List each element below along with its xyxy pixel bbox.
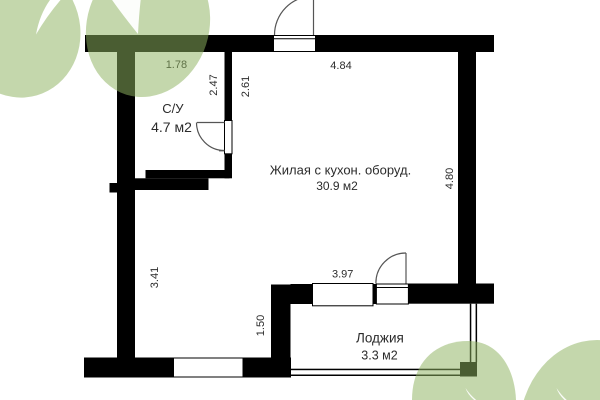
svg-text:4.80: 4.80	[444, 168, 456, 189]
svg-text:30.9 м2: 30.9 м2	[316, 179, 358, 193]
svg-text:4.7 м2: 4.7 м2	[151, 119, 192, 135]
svg-text:2.61: 2.61	[240, 76, 252, 97]
svg-text:С/У: С/У	[162, 101, 184, 116]
svg-text:Жилая с кухон. оборуд.: Жилая с кухон. оборуд.	[270, 162, 411, 177]
svg-text:4.84: 4.84	[330, 60, 351, 72]
svg-text:3.3 м2: 3.3 м2	[361, 349, 397, 363]
svg-text:3.97: 3.97	[332, 269, 353, 281]
svg-text:2.47: 2.47	[208, 74, 220, 95]
svg-text:Лоджия: Лоджия	[356, 330, 404, 345]
svg-text:1.50: 1.50	[255, 315, 267, 336]
svg-text:3.41: 3.41	[149, 267, 161, 288]
